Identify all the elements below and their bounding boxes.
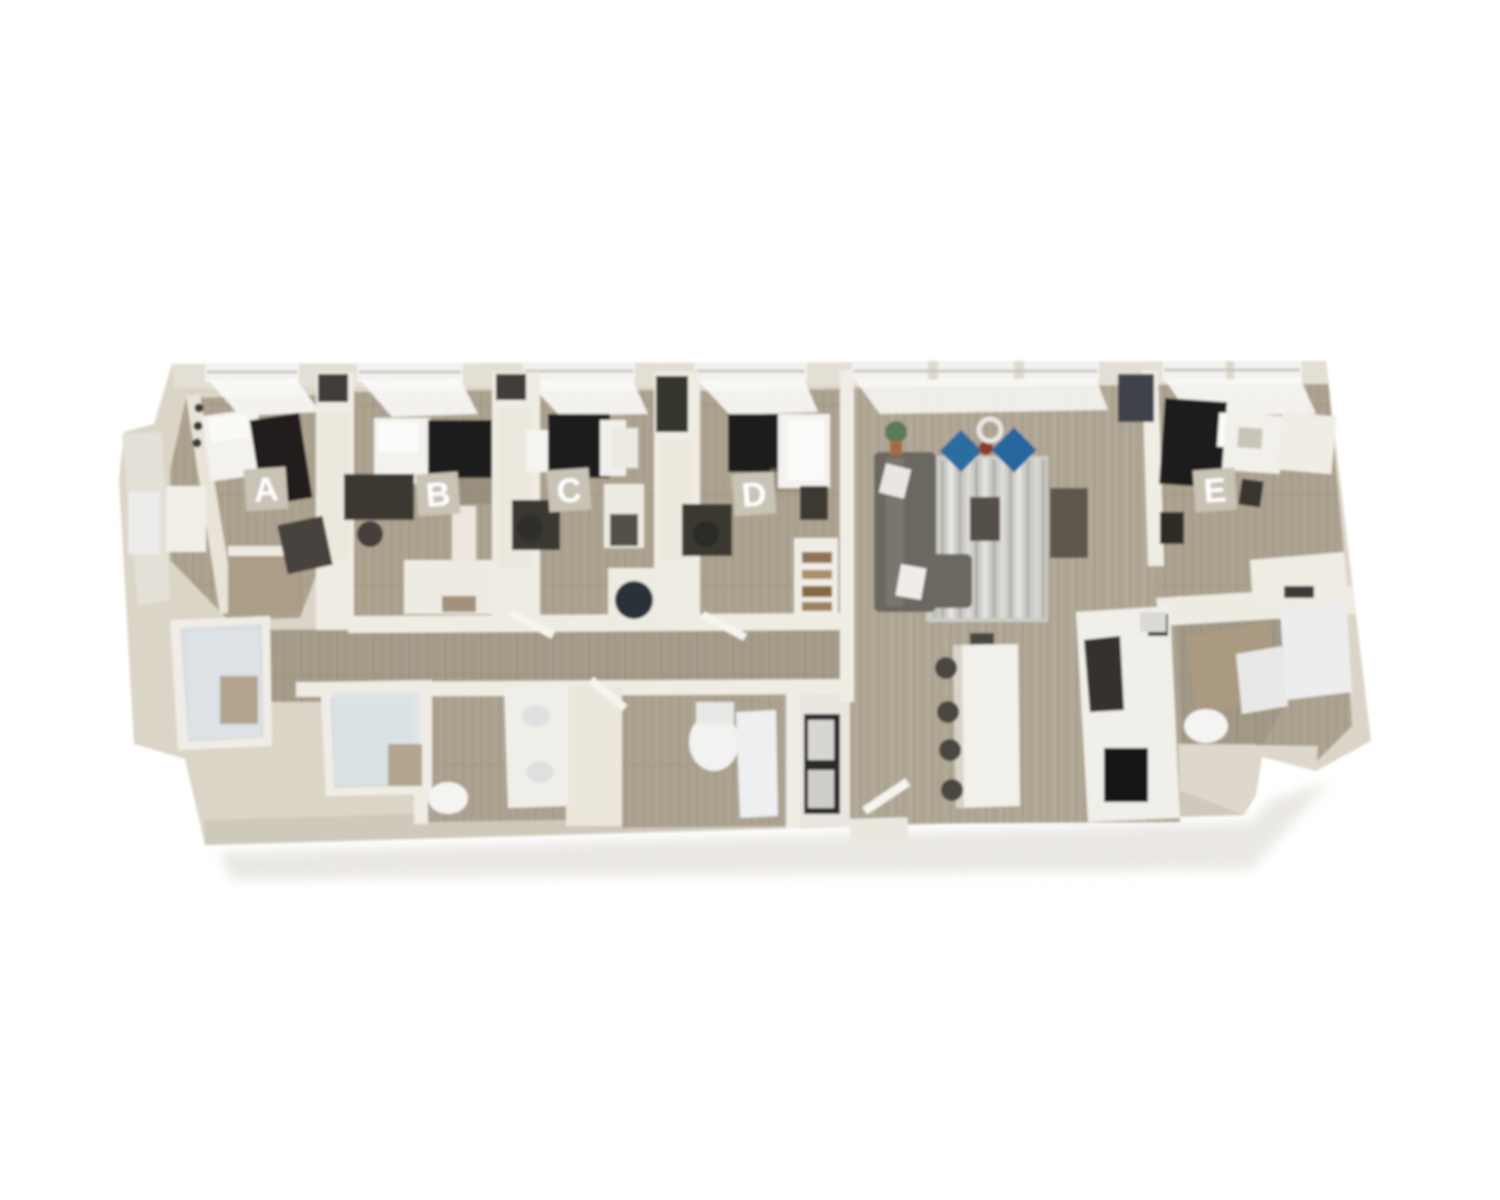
svg-text:D: D — [740, 475, 767, 515]
svg-text:B: B — [424, 475, 451, 515]
svg-text:C: C — [555, 471, 582, 511]
svg-text:A: A — [252, 470, 279, 510]
svg-text:E: E — [1202, 471, 1227, 510]
